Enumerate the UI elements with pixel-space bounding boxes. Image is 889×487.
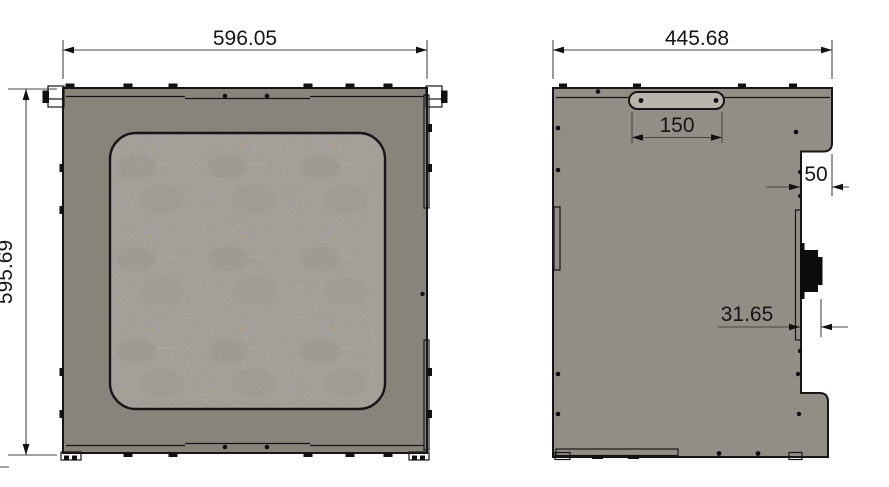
hole-dot [596,89,601,94]
drawing-canvas: 596.05 595.69 [0,0,889,487]
side-panel-face [553,88,832,457]
front-height-dim-label: 595.69 [0,240,17,304]
hole-dot [756,451,761,456]
hole-dot [556,372,561,377]
hole-dot [794,130,799,135]
front-window [110,133,385,409]
hole-dot [556,412,561,417]
hole-dot [556,168,561,173]
hole-dot [556,126,561,131]
slot-dim-label: 150 [659,114,694,137]
hole-dot [796,372,800,376]
edge-bump [798,170,802,174]
hole-dot [265,445,270,450]
screw-dot [639,98,644,103]
hole-dot [223,445,228,450]
notch-dim-label: 50 [804,163,827,186]
hole-dot [223,94,228,99]
handle-slot [629,92,724,109]
connector-dim-label: 31.65 [721,303,774,326]
hole-dot [797,412,801,416]
hole-dot [420,292,424,296]
hole-dot [265,94,270,99]
front-view: 596.05 595.69 [0,27,448,467]
screw-dot [714,98,719,103]
hole-dot [717,451,722,456]
window-texture [110,133,385,409]
front-width-dim-label: 596.05 [213,27,277,50]
hole-dot [798,349,802,353]
side-width-dim-label: 445.68 [665,27,729,50]
edge-bump [798,194,802,198]
